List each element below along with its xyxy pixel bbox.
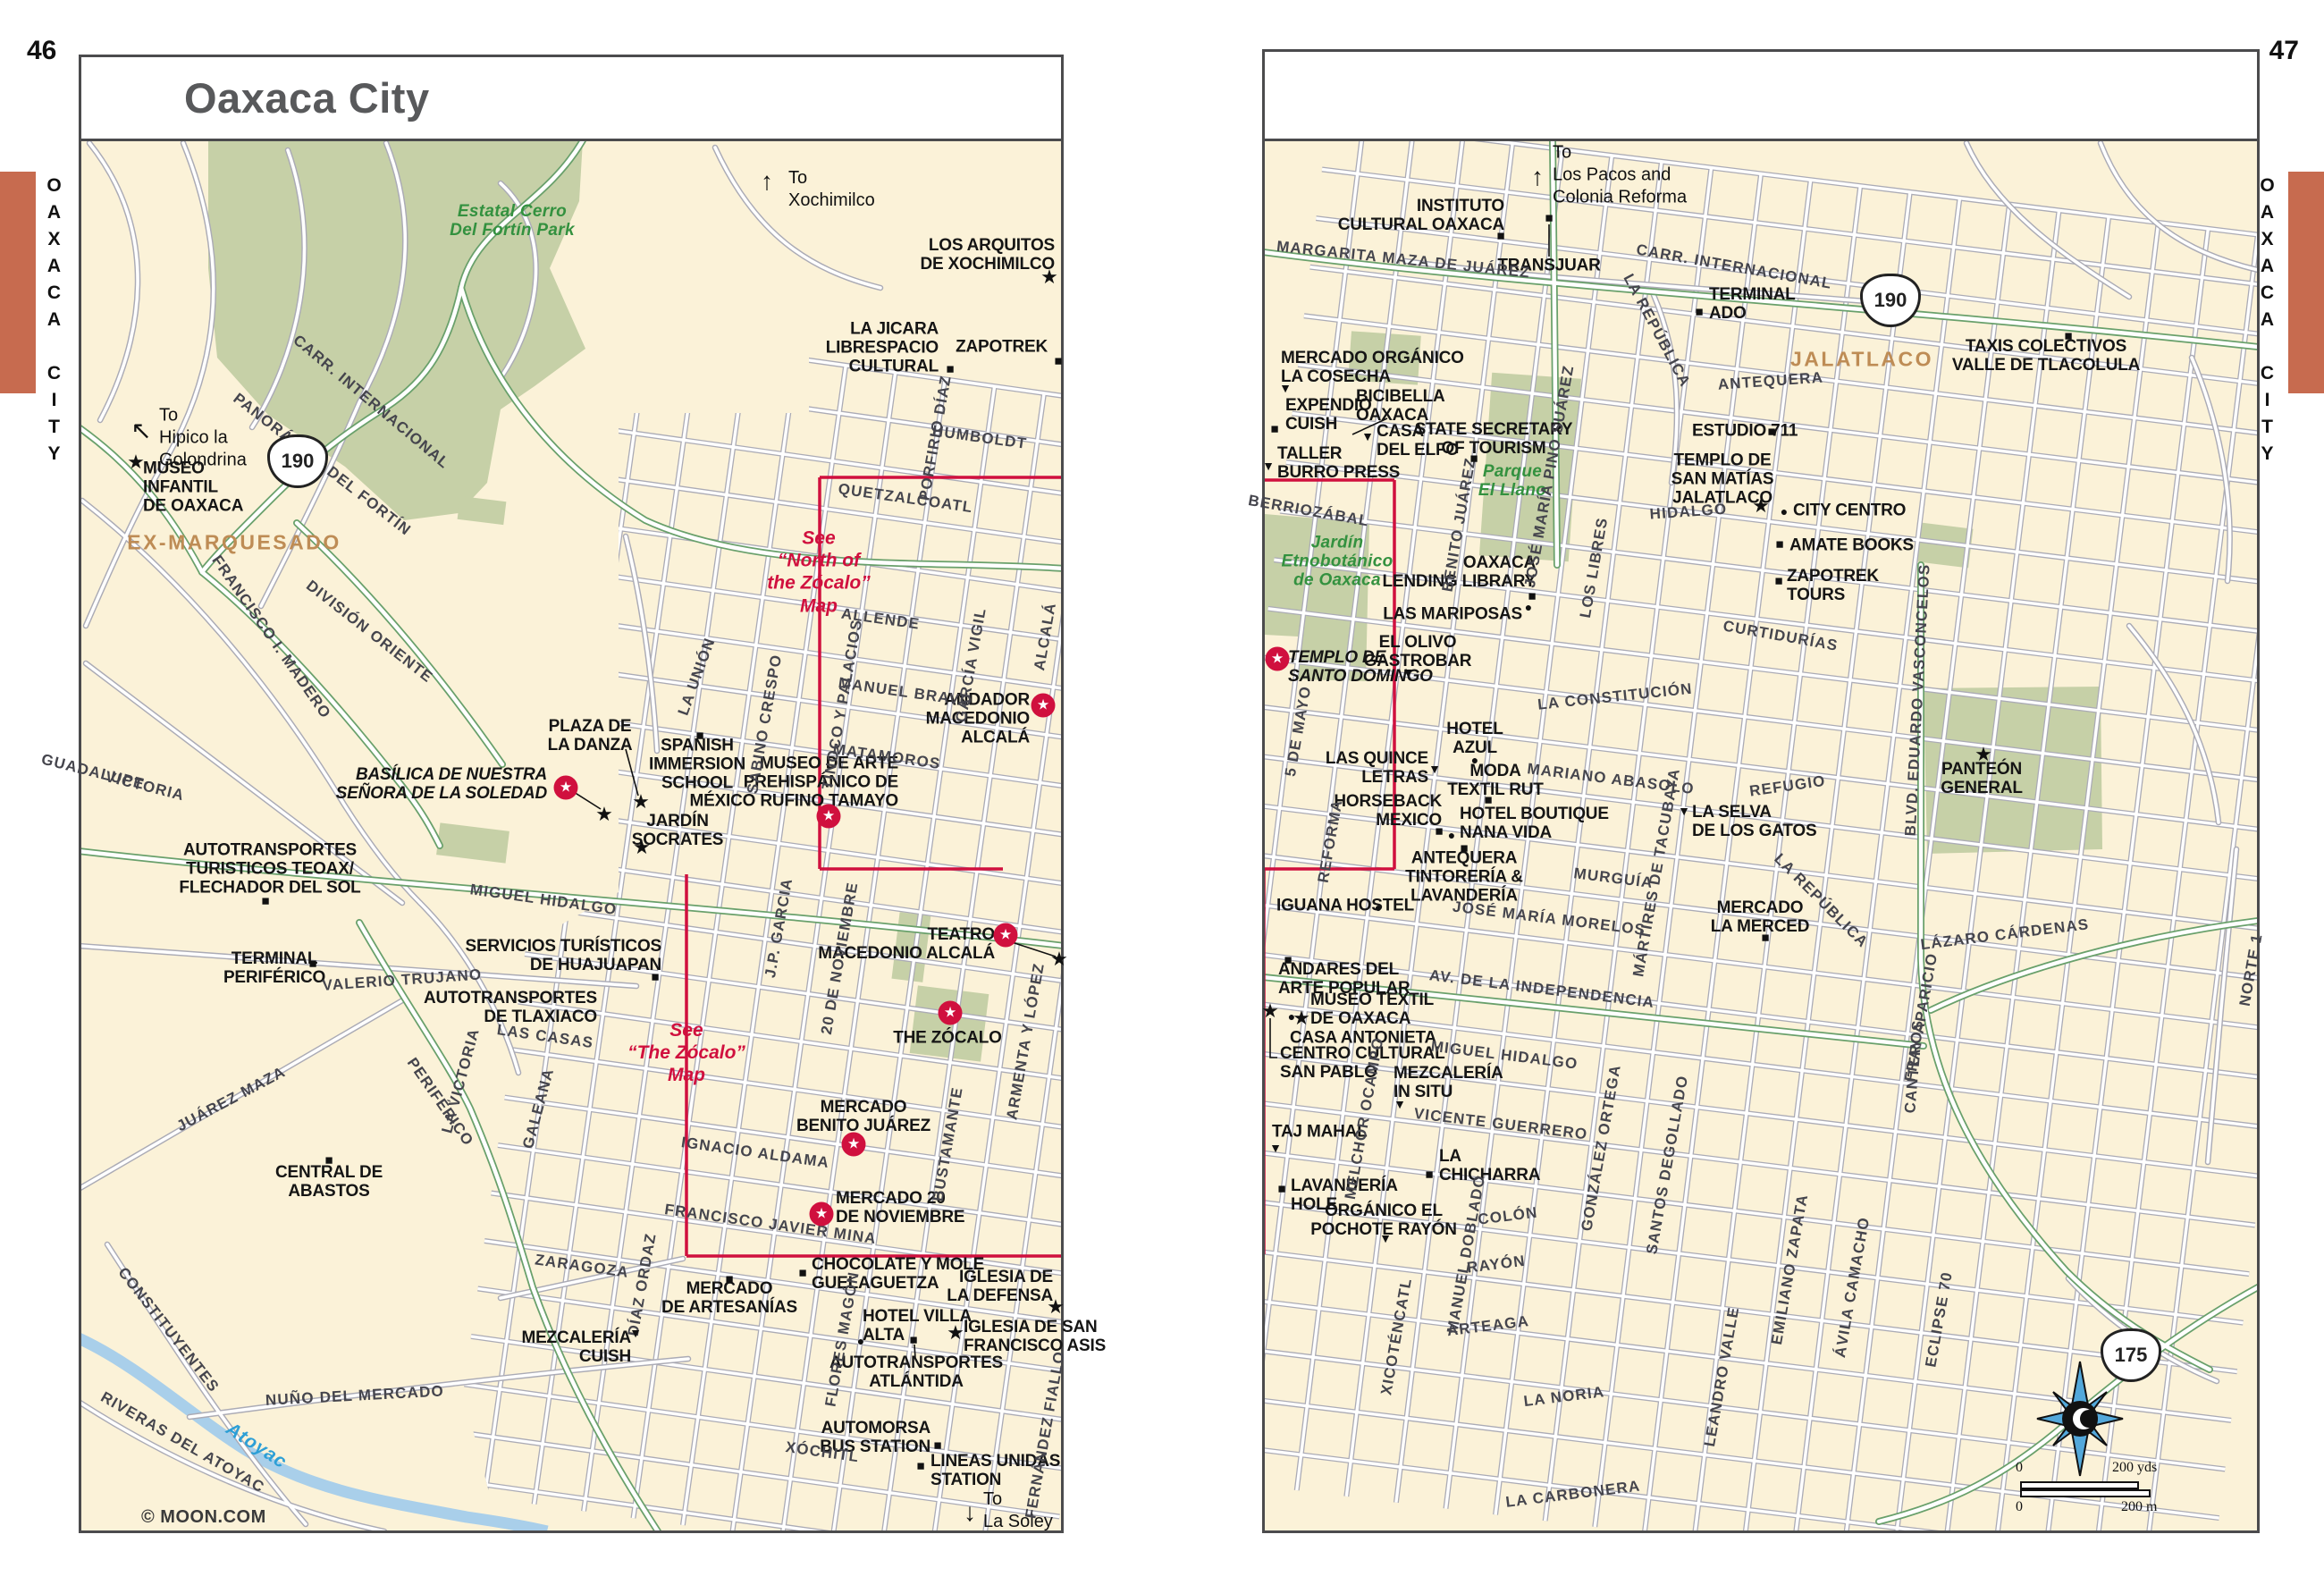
scale-zero-bottom: 0 bbox=[2016, 1499, 2023, 1515]
page-number-left: 46 bbox=[27, 36, 56, 66]
chapter-tab-label-right: OAXACA CITY bbox=[2256, 175, 2278, 470]
scale-label-m: 200 m bbox=[2121, 1499, 2157, 1515]
scale-bar-m bbox=[2020, 1489, 2151, 1497]
chapter-tab-left bbox=[0, 172, 36, 393]
left-map-frame bbox=[79, 139, 1064, 1533]
page-number-right: 47 bbox=[2269, 36, 2299, 66]
guidebook-map-spread: Oaxaca City 46 47 OAXACA CITY OAXACA CIT… bbox=[0, 0, 2324, 1585]
right-map-top-band bbox=[1262, 49, 2260, 141]
scale-zero-top: 0 bbox=[2016, 1460, 2023, 1476]
right-map-frame bbox=[1262, 139, 2260, 1533]
chapter-tab-right bbox=[2288, 172, 2324, 393]
left-map-title-box: Oaxaca City bbox=[79, 55, 1064, 141]
scale-bar-yds bbox=[2020, 1481, 2139, 1489]
scale-label-yds: 200 yds bbox=[2112, 1460, 2157, 1476]
chapter-tab-label-left: OAXACA CITY bbox=[43, 175, 64, 470]
map-title: Oaxaca City bbox=[184, 73, 430, 122]
